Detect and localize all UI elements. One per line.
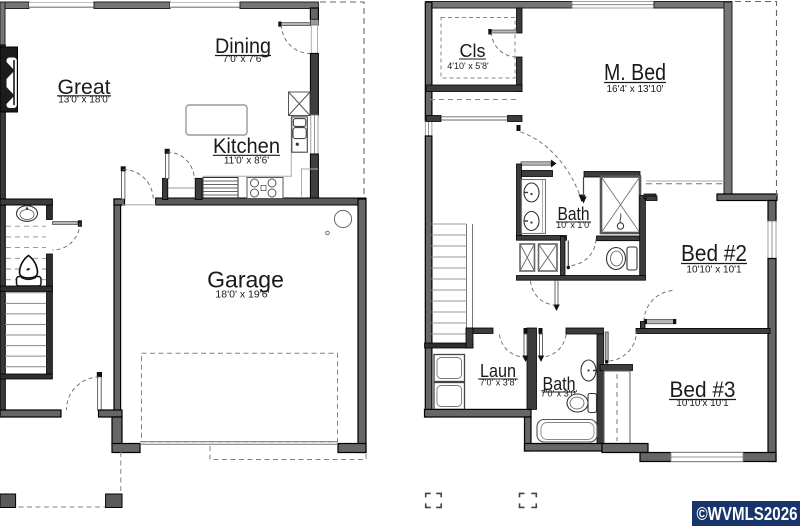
svg-text:18'0' x 19'6': 18'0' x 19'6' [215, 289, 269, 301]
svg-text:10'10'x 10'1: 10'10'x 10'1 [676, 398, 729, 409]
svg-text:©WVMLS2026: ©WVMLS2026 [697, 504, 798, 524]
svg-text:Cls: Cls [460, 41, 486, 61]
svg-text:10'10' x 10'1: 10'10' x 10'1 [686, 265, 742, 276]
svg-text:10' x 1'0': 10' x 1'0' [556, 220, 591, 230]
svg-text:M. Bed: M. Bed [604, 59, 666, 85]
svg-text:13'0' x 18'0': 13'0' x 18'0' [58, 95, 110, 106]
svg-text:7'0' x 7'6': 7'0' x 7'6' [223, 54, 264, 65]
svg-text:4'10' x 5'8': 4'10' x 5'8' [447, 61, 489, 71]
svg-text:11'0' x 8'6': 11'0' x 8'6' [224, 156, 269, 167]
svg-text:7'0' x 3'8': 7'0' x 3'8' [480, 378, 517, 388]
svg-text:16'4' x 13'10': 16'4' x 13'10' [606, 84, 663, 95]
svg-text:Bed #2: Bed #2 [681, 240, 747, 266]
